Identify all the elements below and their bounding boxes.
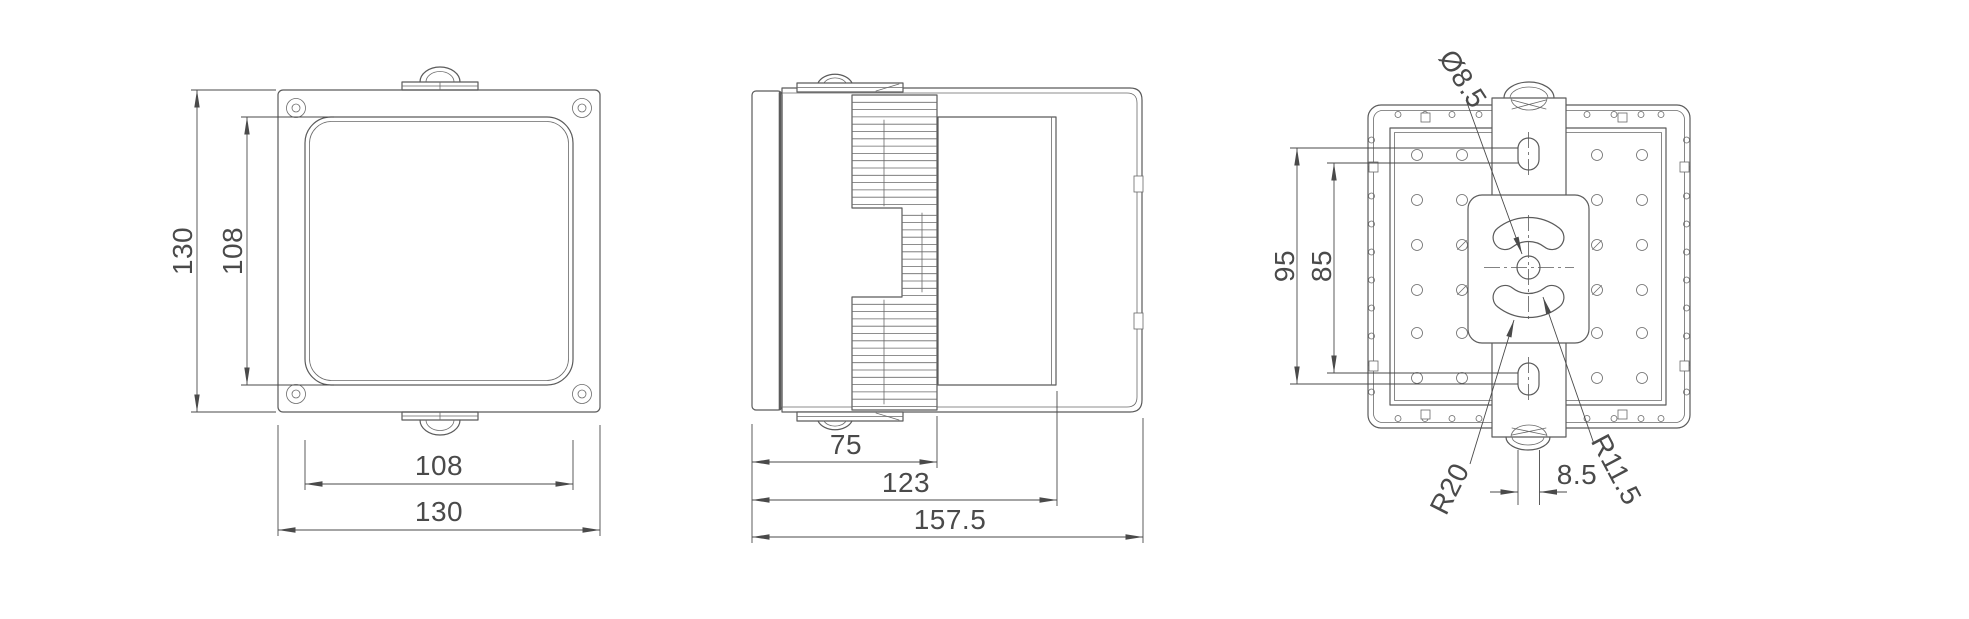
back-view: 95 85 8.5 Ø8.5 R20 R11.5	[1269, 44, 1690, 519]
back-mount-bracket	[1468, 82, 1589, 450]
dim-front-height-outer: 130	[167, 227, 198, 275]
front-lens-bezel-outer	[305, 117, 573, 385]
side-top-mount-tab	[797, 74, 903, 92]
side-bottom-mount-tab	[797, 412, 903, 430]
technical-drawing-page: 130 108 108 130	[0, 0, 1969, 619]
front-housing-outline	[278, 90, 600, 412]
front-corner-screw-icons	[287, 99, 592, 404]
side-driver-box	[938, 117, 1056, 385]
dim-back-slot-width: 8.5	[1557, 459, 1597, 490]
dim-back-slot-radius: R20	[1424, 458, 1476, 519]
front-bottom-mount-tab	[402, 412, 478, 435]
dim-front-width-outer: 130	[415, 496, 463, 527]
front-dim-width-inner: 108	[305, 440, 573, 490]
dim-side-body-depth: 123	[882, 467, 930, 498]
dim-front-height-inner: 108	[217, 227, 248, 275]
front-top-mount-tab	[402, 67, 478, 90]
side-view: 75 123 157.5	[752, 74, 1143, 543]
side-dim-overall-depth: 157.5	[752, 418, 1143, 543]
side-housing-outline	[782, 88, 1142, 412]
dim-back-mount-span-outer: 95	[1269, 250, 1300, 282]
front-view: 130 108 108 130	[167, 67, 600, 536]
back-dim-slot-width: 8.5	[1490, 450, 1597, 505]
side-heatsink-fins	[852, 95, 937, 410]
floodlight-dimension-drawing: 130 108 108 130	[0, 0, 1969, 619]
dim-side-overall-depth: 157.5	[914, 504, 987, 535]
front-dim-height-inner: 108	[217, 117, 334, 385]
side-clip-notch-top	[1134, 176, 1143, 192]
dim-side-heatsink-depth: 75	[830, 429, 862, 460]
side-clip-notch-bottom	[1134, 313, 1143, 329]
dim-back-mount-span-inner: 85	[1306, 250, 1337, 282]
front-lens-bezel-inner	[310, 122, 569, 381]
dim-front-width-inner: 108	[415, 450, 463, 481]
side-front-bezel	[752, 91, 782, 410]
dim-back-hole-diameter: Ø8.5	[1433, 44, 1493, 113]
